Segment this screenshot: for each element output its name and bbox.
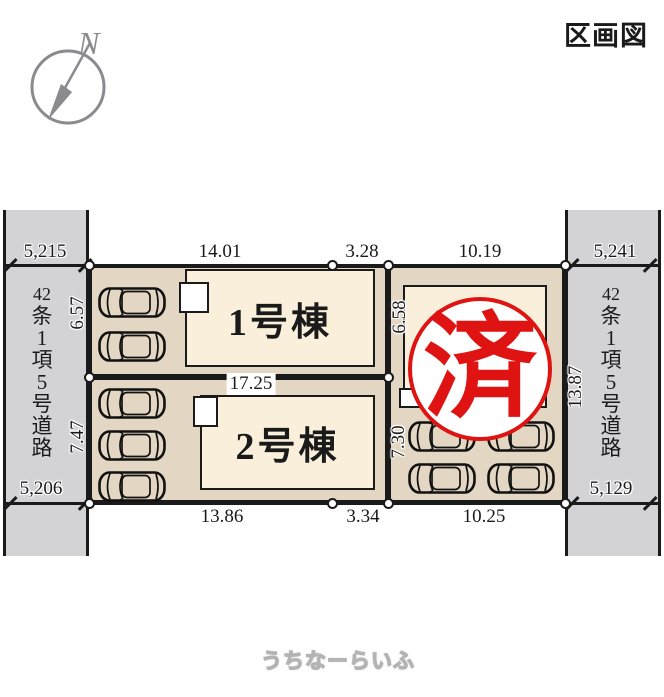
survey-point: [84, 498, 95, 509]
road-right-label: 42条1項5号道路: [588, 283, 634, 459]
dim-top-plot3: 10.19: [459, 241, 502, 263]
car-icon: [98, 388, 166, 419]
sold-stamp-text: 済: [423, 312, 537, 426]
survey-point: [327, 498, 338, 509]
dim-top-plot1-main: 14.01: [199, 241, 242, 263]
plot-plan-canvas: N 区画図 42条1項5号道路 42条1項5号道路 1号棟 2号棟: [0, 0, 664, 697]
dim-plot3-upper: 6.58: [389, 294, 411, 340]
car-icon: [98, 287, 166, 318]
survey-point: [84, 260, 95, 271]
dim-bottom-plot2-main: 13.86: [201, 506, 244, 528]
survey-point: [84, 372, 95, 383]
survey-point: [327, 260, 338, 271]
compass-n-label: N: [77, 25, 101, 61]
survey-point: [560, 498, 571, 509]
building-1: 1号棟: [185, 269, 375, 367]
building-1-label: 1号棟: [228, 291, 332, 346]
dim-bottom-left-road: 5,206: [20, 478, 63, 500]
dim-bottom-plot3: 10.25: [463, 506, 506, 528]
car-icon: [98, 430, 166, 461]
dim-top-left-road: 5,215: [24, 241, 67, 263]
dim-plot2-depth: 7.47: [67, 414, 89, 460]
car-icon: [487, 463, 555, 494]
building-2-porch: [193, 396, 218, 427]
car-icon: [98, 471, 166, 502]
compass-icon: N: [20, 18, 120, 128]
dim-bottom-right-road: 5,129: [590, 478, 633, 500]
survey-point: [560, 260, 571, 271]
survey-point: [383, 498, 394, 509]
dim-right-side: 13.87: [565, 364, 587, 410]
survey-point: [383, 372, 394, 383]
dim-plot1-depth: 6.57: [67, 290, 89, 336]
building-1-porch: [179, 282, 209, 313]
dim-top-plot1-side: 3.28: [345, 241, 378, 263]
watermark-logo: うちなーらいふ: [238, 645, 438, 675]
sold-stamp: 済: [408, 297, 552, 441]
building-2-label: 2号棟: [235, 415, 339, 470]
building-2: 2号棟: [200, 395, 375, 490]
road-left-label: 42条1項5号道路: [19, 283, 65, 459]
dim-bottom-plot2-side: 3.34: [346, 506, 379, 528]
survey-point: [383, 260, 394, 271]
page-title: 区画図: [564, 14, 648, 53]
dim-top-right-road: 5,241: [594, 241, 637, 263]
dim-plot3-lower: 7.30: [388, 419, 410, 465]
car-icon: [408, 463, 476, 494]
dim-plot2-top: 17.25: [227, 373, 276, 395]
car-icon: [98, 331, 166, 362]
